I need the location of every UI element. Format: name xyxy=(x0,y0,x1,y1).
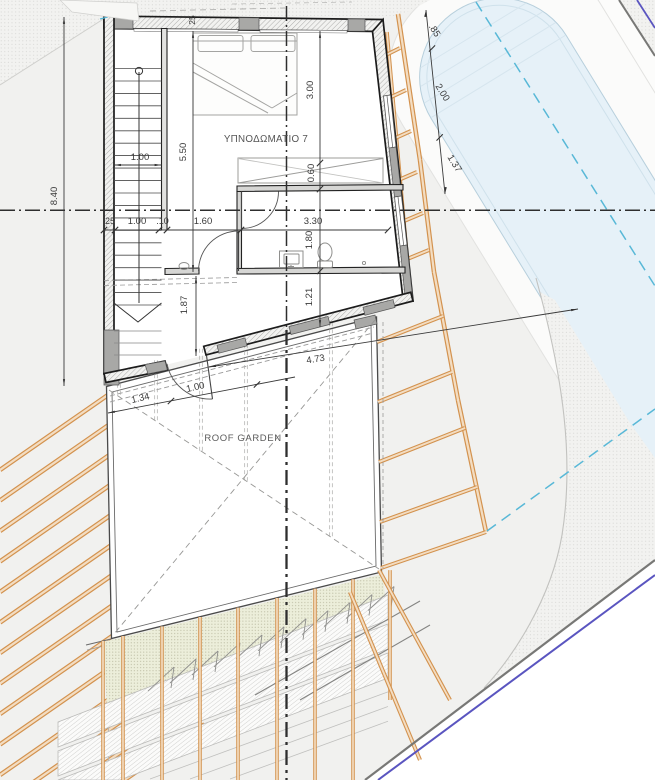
svg-text:1.80: 1.80 xyxy=(304,231,315,250)
svg-text:5.50: 5.50 xyxy=(178,143,189,162)
svg-text:ROOF GARDEN: ROOF GARDEN xyxy=(204,433,281,444)
svg-text:0.60: 0.60 xyxy=(306,164,317,183)
svg-text:.10: .10 xyxy=(156,216,169,226)
svg-text:1.00: 1.00 xyxy=(128,216,147,227)
svg-text:1.87: 1.87 xyxy=(179,296,190,315)
svg-text:1.00: 1.00 xyxy=(131,152,150,163)
svg-text:ΥΠΝΟΔΩΜΑΤΙΟ 7: ΥΠΝΟΔΩΜΑΤΙΟ 7 xyxy=(224,134,308,145)
svg-text:25: 25 xyxy=(187,15,197,25)
svg-text:3.30: 3.30 xyxy=(304,216,323,227)
svg-text:1.21: 1.21 xyxy=(304,288,315,307)
svg-text:1.60: 1.60 xyxy=(194,216,213,227)
svg-text:25: 25 xyxy=(105,216,115,226)
svg-text:3.00: 3.00 xyxy=(305,81,316,100)
svg-text:8.40: 8.40 xyxy=(49,187,60,206)
